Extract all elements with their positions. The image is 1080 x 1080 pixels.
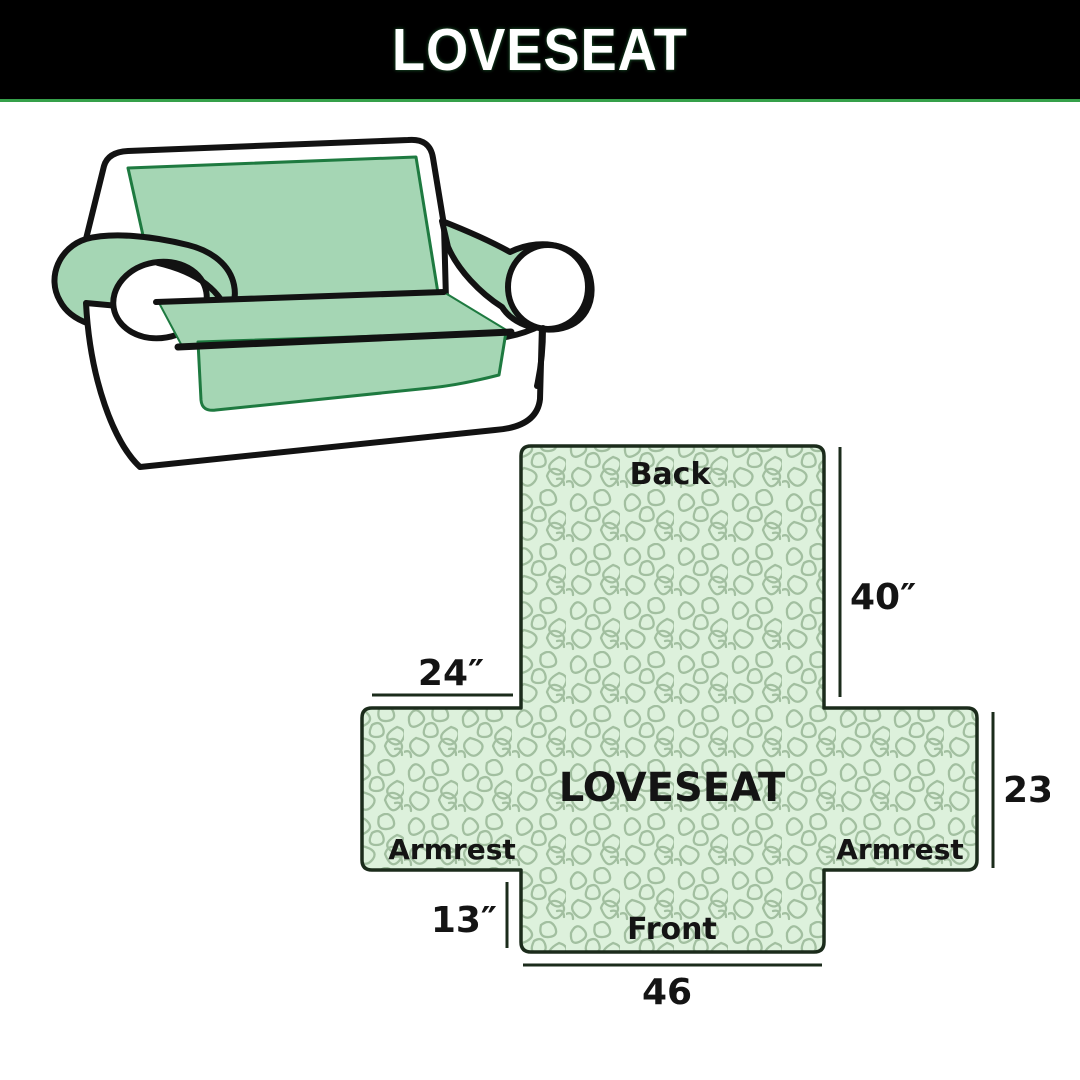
cover-shape — [362, 446, 977, 952]
dim-armrest-top-width-label: 24″ — [418, 653, 484, 694]
header-bar: LOVESEAT — [0, 0, 1080, 102]
cover-diagram: Back 40″ 24″ LOVESEAT Armrest Armrest 23… — [350, 435, 1050, 1025]
dim-front-height-label: 13″ — [431, 900, 497, 941]
cover-center-label: LOVESEAT — [559, 765, 786, 811]
dim-armrest-side-height-label: 23″ — [1003, 770, 1050, 811]
sofa-right-arm-scroll — [508, 245, 588, 329]
armrest-right-label: Armrest — [836, 833, 964, 866]
front-label: Front — [627, 912, 717, 947]
dim-back-height-label: 40″ — [850, 577, 916, 618]
back-label: Back — [630, 457, 712, 492]
armrest-left-label: Armrest — [388, 833, 516, 866]
loveseat-infographic: LOVESEAT — [0, 0, 1080, 1080]
dim-front-width-label: 46 — [642, 972, 692, 1013]
header-title: LOVESEAT — [392, 16, 688, 84]
